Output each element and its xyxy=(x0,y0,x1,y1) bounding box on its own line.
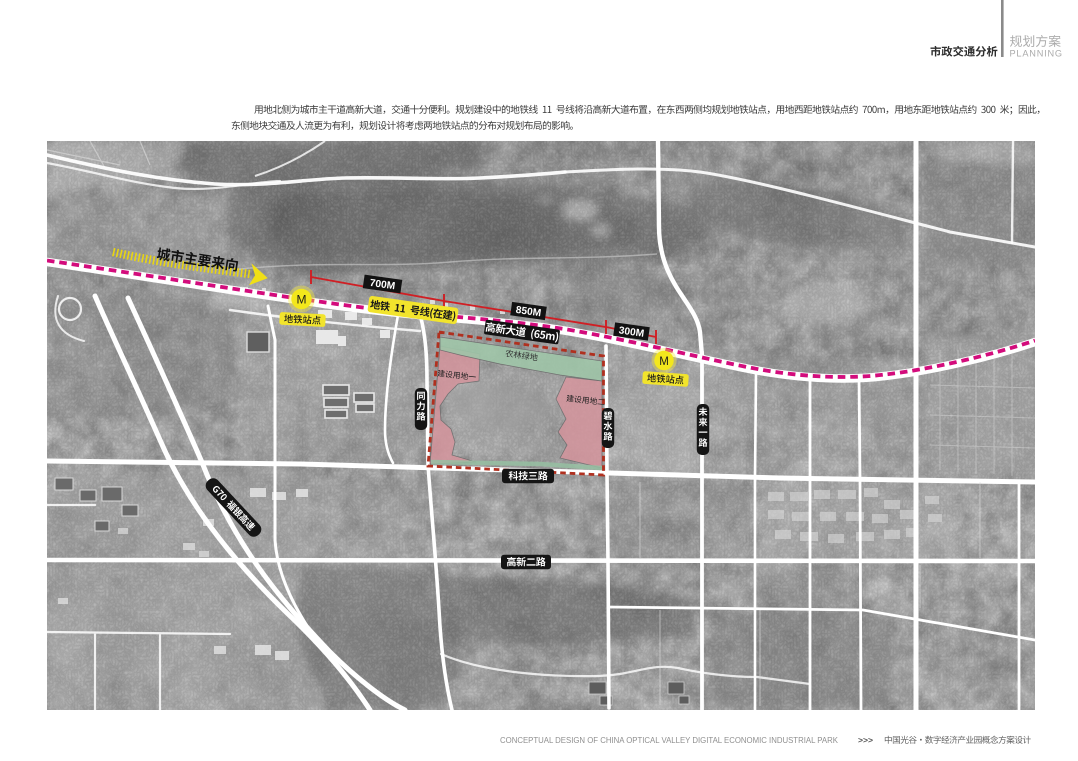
svg-text:CONCEPTUAL DESIGN OF CHINA OPT: CONCEPTUAL DESIGN OF CHINA OPTICAL VALLE… xyxy=(500,736,839,745)
svg-text:>>>: >>> xyxy=(858,735,873,745)
svg-text:M: M xyxy=(297,292,307,306)
svg-text:M: M xyxy=(659,356,669,368)
svg-text:PLANNING: PLANNING xyxy=(1010,48,1063,58)
